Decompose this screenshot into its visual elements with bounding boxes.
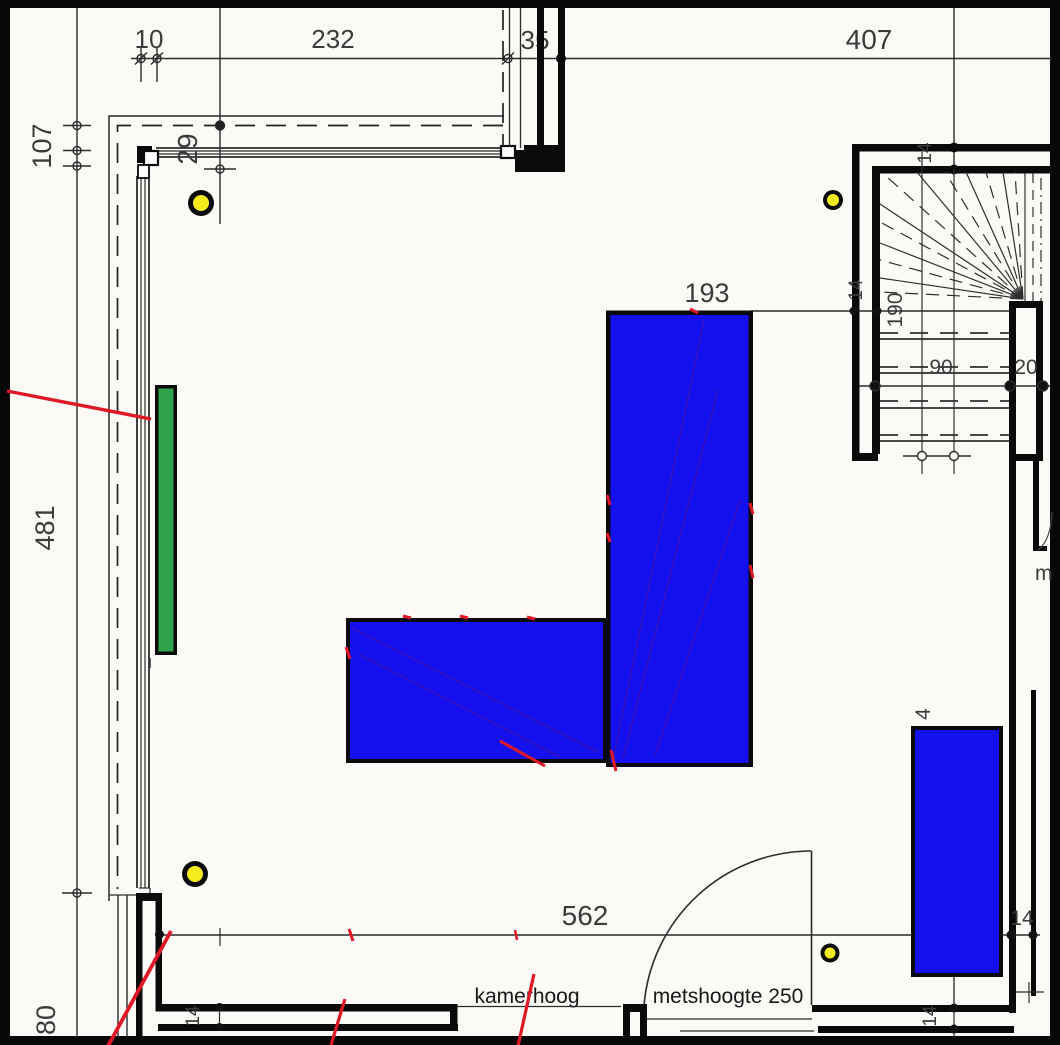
- svg-text:14: 14: [915, 142, 936, 164]
- svg-text:m: m: [1035, 562, 1053, 585]
- svg-text:14: 14: [183, 1005, 204, 1027]
- svg-text:232: 232: [311, 24, 354, 54]
- svg-text:407: 407: [846, 24, 893, 55]
- svg-text:4: 4: [912, 708, 935, 720]
- svg-text:193: 193: [684, 278, 729, 308]
- svg-text:14: 14: [846, 279, 867, 301]
- svg-text:481: 481: [30, 505, 60, 550]
- svg-text:190: 190: [884, 292, 907, 327]
- svg-text:14: 14: [920, 1005, 941, 1027]
- svg-text:29: 29: [172, 133, 203, 164]
- svg-text:80: 80: [31, 1005, 61, 1035]
- svg-text:107: 107: [27, 123, 57, 168]
- svg-text:20: 20: [1014, 356, 1037, 379]
- svg-text:90: 90: [929, 356, 952, 379]
- svg-text:10: 10: [135, 24, 164, 54]
- svg-text:562: 562: [562, 900, 609, 931]
- svg-text:35: 35: [521, 25, 550, 55]
- svg-text:metshoogte 250: metshoogte 250: [653, 985, 804, 1008]
- svg-text:14: 14: [1010, 907, 1034, 930]
